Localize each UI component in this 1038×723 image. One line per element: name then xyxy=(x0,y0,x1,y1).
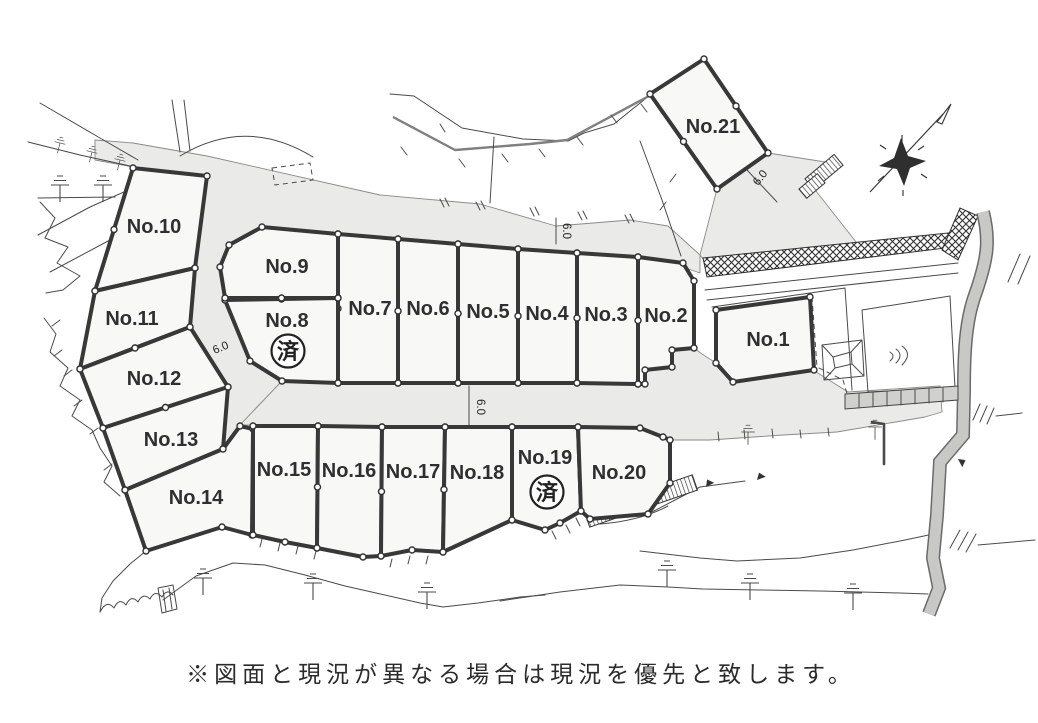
slope-ticks-upper xyxy=(401,104,676,210)
lot-18-label: No.18 xyxy=(450,462,504,484)
lot-6-label: No.6 xyxy=(406,298,449,320)
north-star xyxy=(870,104,951,196)
lot-17-label: No.17 xyxy=(386,461,440,483)
boundary-point-icon xyxy=(713,307,719,313)
sold-badge-label-19: 済 xyxy=(536,480,559,505)
boundary-point-icon xyxy=(574,315,580,321)
boundary-point-icon xyxy=(247,358,253,364)
ground-symbol xyxy=(194,569,212,595)
boundary-point-icon xyxy=(409,547,415,553)
site-plan-canvas: No.1No.2No.3No.4No.5No.6No.7No.8済No.9No.… xyxy=(0,0,1038,723)
boundary-point-icon xyxy=(635,254,641,260)
boundary-point-icon xyxy=(509,424,515,430)
slope-arrow-icon xyxy=(756,472,766,480)
boundary-point-icon xyxy=(143,548,149,554)
lot-10-label: No.10 xyxy=(127,216,181,238)
bottom-terrain-3 xyxy=(500,585,928,601)
topleft-lane-2 xyxy=(184,100,190,151)
boundary-point-icon xyxy=(282,539,288,545)
east-building xyxy=(822,340,864,380)
boundary-point-icon xyxy=(315,423,321,429)
boundary-point-icon xyxy=(100,425,106,431)
boundary-point-icon xyxy=(335,380,341,386)
boundary-point-icon xyxy=(578,508,584,514)
lot-4-label: No.4 xyxy=(525,303,569,325)
boundary-point-icon xyxy=(515,246,521,252)
lot-17 xyxy=(381,427,445,556)
boundary-point-icon xyxy=(660,434,666,440)
boundary-point-icon xyxy=(701,56,707,62)
site-plan-svg: No.1No.2No.3No.4No.5No.6No.7No.8済No.9No.… xyxy=(0,0,1038,723)
lot-20-label: No.20 xyxy=(592,462,646,484)
boundary-point-icon xyxy=(807,294,813,300)
boundary-point-icon xyxy=(515,313,521,319)
lot-9-label: No.9 xyxy=(265,256,308,278)
boundary-point-icon xyxy=(455,380,461,386)
boundary-point-icon xyxy=(111,227,117,233)
boundary-point-icon xyxy=(250,532,256,538)
bottom-terrain-1 xyxy=(163,563,545,607)
boundary-point-icon xyxy=(122,487,128,493)
lot-11-label: No.11 xyxy=(105,308,158,330)
ground-symbol xyxy=(304,574,322,600)
lot-16-label: No.16 xyxy=(322,460,376,482)
lot-21-label: No.21 xyxy=(686,116,740,138)
ground-symbol xyxy=(741,574,759,600)
boundary-point-icon xyxy=(220,446,226,452)
boundary-point-icon xyxy=(204,173,210,179)
boundary-point-icon xyxy=(515,380,521,386)
boundary-point-icon xyxy=(77,366,83,372)
disclaimer-note: ※図面と現況が異なる場合は現況を優先と致します。 xyxy=(186,662,856,687)
topleft-lane-1 xyxy=(172,100,180,152)
lot-5-label: No.5 xyxy=(466,301,509,323)
boundary-point-icon xyxy=(395,236,401,242)
boundary-point-icon xyxy=(378,553,384,559)
lot-13-label: No.13 xyxy=(144,429,198,451)
boundary-point-icon xyxy=(667,480,673,486)
boundary-point-icon xyxy=(187,324,193,330)
east-strip-line-2 xyxy=(707,273,958,300)
boundary-point-icon xyxy=(691,345,697,351)
boundary-point-icon xyxy=(226,242,232,248)
lot-19-label: No.19 xyxy=(518,447,572,469)
boundary-point-icon xyxy=(681,139,687,145)
boundary-point-icon xyxy=(557,520,563,526)
boundary-point-icon xyxy=(259,224,265,230)
boundary-point-icon xyxy=(192,265,198,271)
boundary-point-icon xyxy=(680,260,686,266)
boundary-point-icon xyxy=(130,165,136,171)
boundary-point-icon xyxy=(642,367,648,373)
slope-arrow-icon xyxy=(958,457,967,468)
boundary-point-icon xyxy=(509,517,515,523)
lot-1-label: No.1 xyxy=(746,329,789,351)
boundary-point-icon xyxy=(219,524,225,530)
ground-symbol xyxy=(52,136,67,154)
slope-marks-right-2 xyxy=(950,530,1035,552)
boundary-point-icon xyxy=(691,278,697,284)
boundary-point-icon xyxy=(575,424,581,430)
lot-8-label: No.8 xyxy=(265,310,308,332)
boundary-point-icon xyxy=(314,545,320,551)
boundary-point-icon xyxy=(765,150,771,156)
boundary-point-icon xyxy=(315,484,321,490)
boundary-point-icon xyxy=(811,367,817,373)
boundary-point-icon xyxy=(279,378,285,384)
boundary-point-icon xyxy=(395,308,401,314)
lot-18 xyxy=(443,427,512,552)
road-width-label-1: 6.0 xyxy=(560,223,572,239)
boundary-point-icon xyxy=(645,511,651,517)
boundary-point-icon xyxy=(587,516,593,522)
lot-14-label: No.14 xyxy=(169,487,224,509)
boundary-point-icon xyxy=(733,103,739,109)
boundary-point-icon xyxy=(379,424,385,430)
boundary-point-icon xyxy=(669,347,675,353)
boundary-point-icon xyxy=(713,360,719,366)
lot-15 xyxy=(253,426,318,548)
boundary-point-icon xyxy=(667,437,673,443)
boundary-point-icon xyxy=(163,405,169,411)
slope-marks-right-3 xyxy=(1008,254,1030,284)
road-width-label-2: 6.0 xyxy=(474,399,486,415)
star-icon xyxy=(879,138,926,186)
boundary-point-icon xyxy=(441,487,447,493)
boundary-point-icon xyxy=(92,288,98,294)
bottom-terrain-2 xyxy=(640,533,938,561)
road-end-wall xyxy=(872,422,884,464)
boundary-point-icon xyxy=(225,384,231,390)
boundary-point-icon xyxy=(237,423,243,429)
boundary-point-icon xyxy=(647,91,653,97)
boundary-point-icon xyxy=(442,424,448,430)
upper-old-boundary xyxy=(393,96,649,150)
lot-12-label: No.12 xyxy=(127,368,181,390)
east-parcel-2 xyxy=(862,296,955,392)
boundary-point-icon xyxy=(574,380,580,386)
boundary-point-icon xyxy=(217,264,223,270)
lot-15-label: No.15 xyxy=(257,459,311,481)
sound-arcs xyxy=(890,346,908,365)
boundary-point-icon xyxy=(642,381,648,387)
boundary-point-icon xyxy=(335,295,341,301)
ground-symbol xyxy=(658,561,676,587)
boundary-point-icon xyxy=(222,295,228,301)
lot-3-label: No.3 xyxy=(584,304,627,326)
boundary-point-icon xyxy=(669,364,675,370)
boundary-point-icon xyxy=(279,295,285,301)
boundary-point-icon xyxy=(132,345,138,351)
slope-marks-right-1 xyxy=(973,404,1022,424)
boundary-point-icon xyxy=(635,381,641,387)
boundary-point-icon xyxy=(250,423,256,429)
boundary-point-icon xyxy=(379,489,385,495)
lot-16 xyxy=(317,426,382,557)
sold-badge-label-8: 済 xyxy=(277,339,300,364)
boundary-point-icon xyxy=(335,231,341,237)
north-flag-icon xyxy=(937,104,951,124)
boundary-point-icon xyxy=(395,380,401,386)
hill-arc xyxy=(180,136,313,157)
lot-7-label: No.7 xyxy=(348,298,391,320)
rock-scallops xyxy=(100,592,173,612)
boundary-point-icon xyxy=(440,549,446,555)
ground-symbol xyxy=(844,584,862,610)
boundary-point-icon xyxy=(730,379,736,385)
boundary-point-icon xyxy=(574,250,580,256)
stone-wall-end xyxy=(158,585,177,613)
boundary-point-icon xyxy=(455,241,461,247)
boundary-point-icon xyxy=(455,311,461,317)
lot-2-label: No.2 xyxy=(644,305,687,327)
boundary-point-icon xyxy=(637,425,643,431)
boundary-point-icon xyxy=(635,318,641,324)
boundary-point-icon xyxy=(542,527,548,533)
boundary-point-icon xyxy=(360,554,366,560)
boundary-point-icon xyxy=(714,186,720,192)
